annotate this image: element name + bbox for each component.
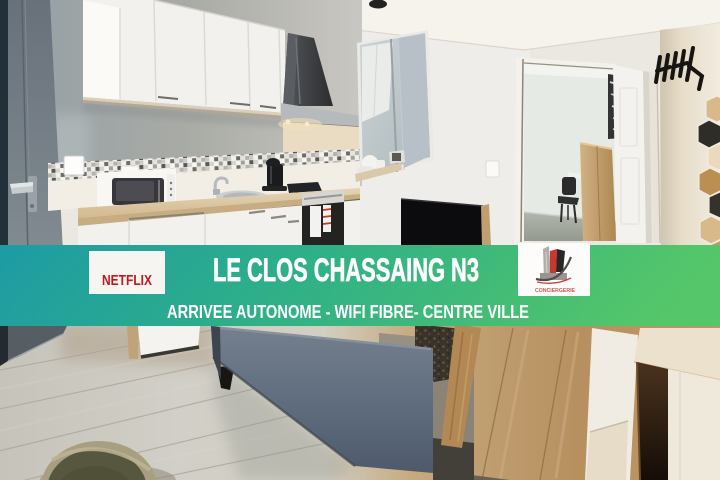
svg-text:LE CLOS CHASSAING N3: LE CLOS CHASSAING N3	[213, 252, 479, 288]
svg-text:CONCIERGERIE: CONCIERGERIE	[535, 288, 575, 294]
svg-text:NETFLIX: NETFLIX	[102, 272, 152, 289]
svg-text:ARRIVEE AUTONOME - WIFI FIBRE-: ARRIVEE AUTONOME - WIFI FIBRE- CENTRE VI…	[167, 302, 529, 322]
